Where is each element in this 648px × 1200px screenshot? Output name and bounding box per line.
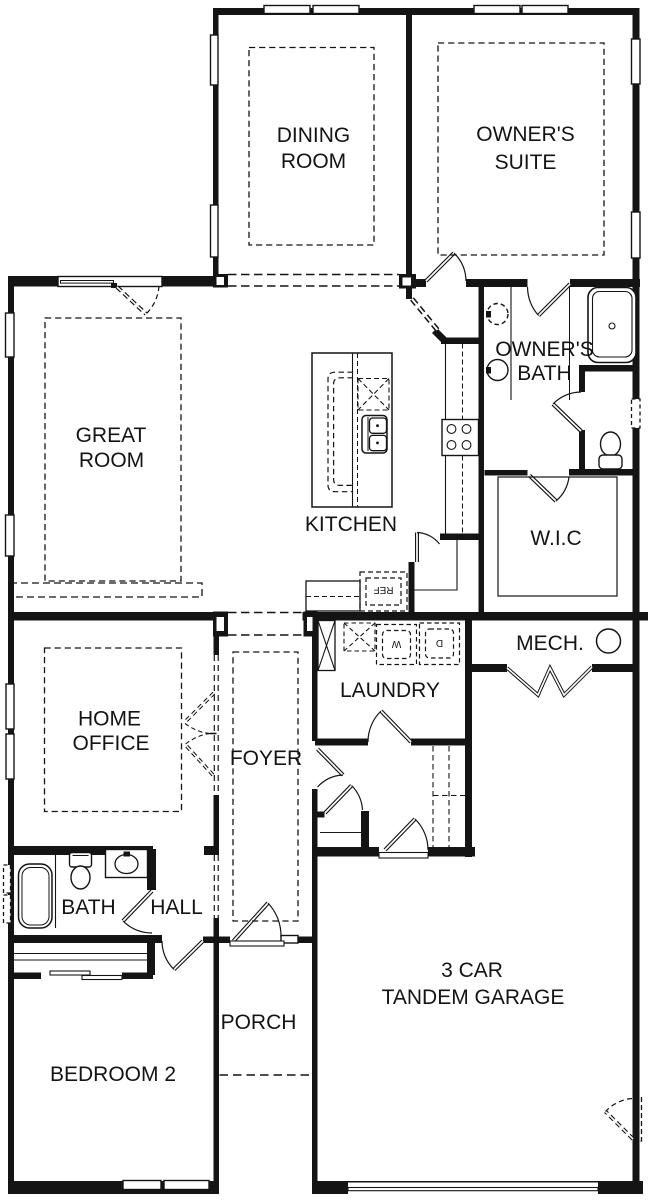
svg-text:TANDEM GARAGE: TANDEM GARAGE bbox=[382, 986, 565, 1009]
svg-text:BATH: BATH bbox=[517, 362, 571, 385]
svg-text:KITCHEN: KITCHEN bbox=[305, 513, 397, 536]
svg-text:REF: REF bbox=[374, 584, 394, 595]
svg-text:OWNER'S: OWNER'S bbox=[476, 123, 575, 146]
svg-text:OWNER'S: OWNER'S bbox=[495, 338, 594, 361]
svg-text:OFFICE: OFFICE bbox=[73, 732, 150, 755]
svg-text:W: W bbox=[391, 638, 401, 649]
svg-text:ROOM: ROOM bbox=[79, 449, 144, 472]
svg-text:LAUNDRY: LAUNDRY bbox=[340, 679, 440, 702]
svg-text:DINING: DINING bbox=[277, 124, 351, 147]
svg-text:3 CAR: 3 CAR bbox=[441, 959, 503, 982]
svg-text:ROOM: ROOM bbox=[281, 150, 346, 173]
svg-text:GREAT: GREAT bbox=[76, 424, 147, 447]
svg-text:W.I.C: W.I.C bbox=[530, 527, 581, 550]
svg-text:HALL: HALL bbox=[150, 896, 203, 919]
svg-text:BEDROOM 2: BEDROOM 2 bbox=[50, 1063, 176, 1086]
svg-text:SUITE: SUITE bbox=[495, 151, 557, 174]
svg-text:FOYER: FOYER bbox=[230, 747, 302, 770]
svg-text:MECH.: MECH. bbox=[516, 632, 584, 655]
svg-text:BATH: BATH bbox=[61, 896, 115, 919]
svg-text:HOME: HOME bbox=[78, 708, 141, 731]
svg-text:PORCH: PORCH bbox=[221, 1011, 297, 1034]
svg-text:D: D bbox=[436, 637, 443, 648]
